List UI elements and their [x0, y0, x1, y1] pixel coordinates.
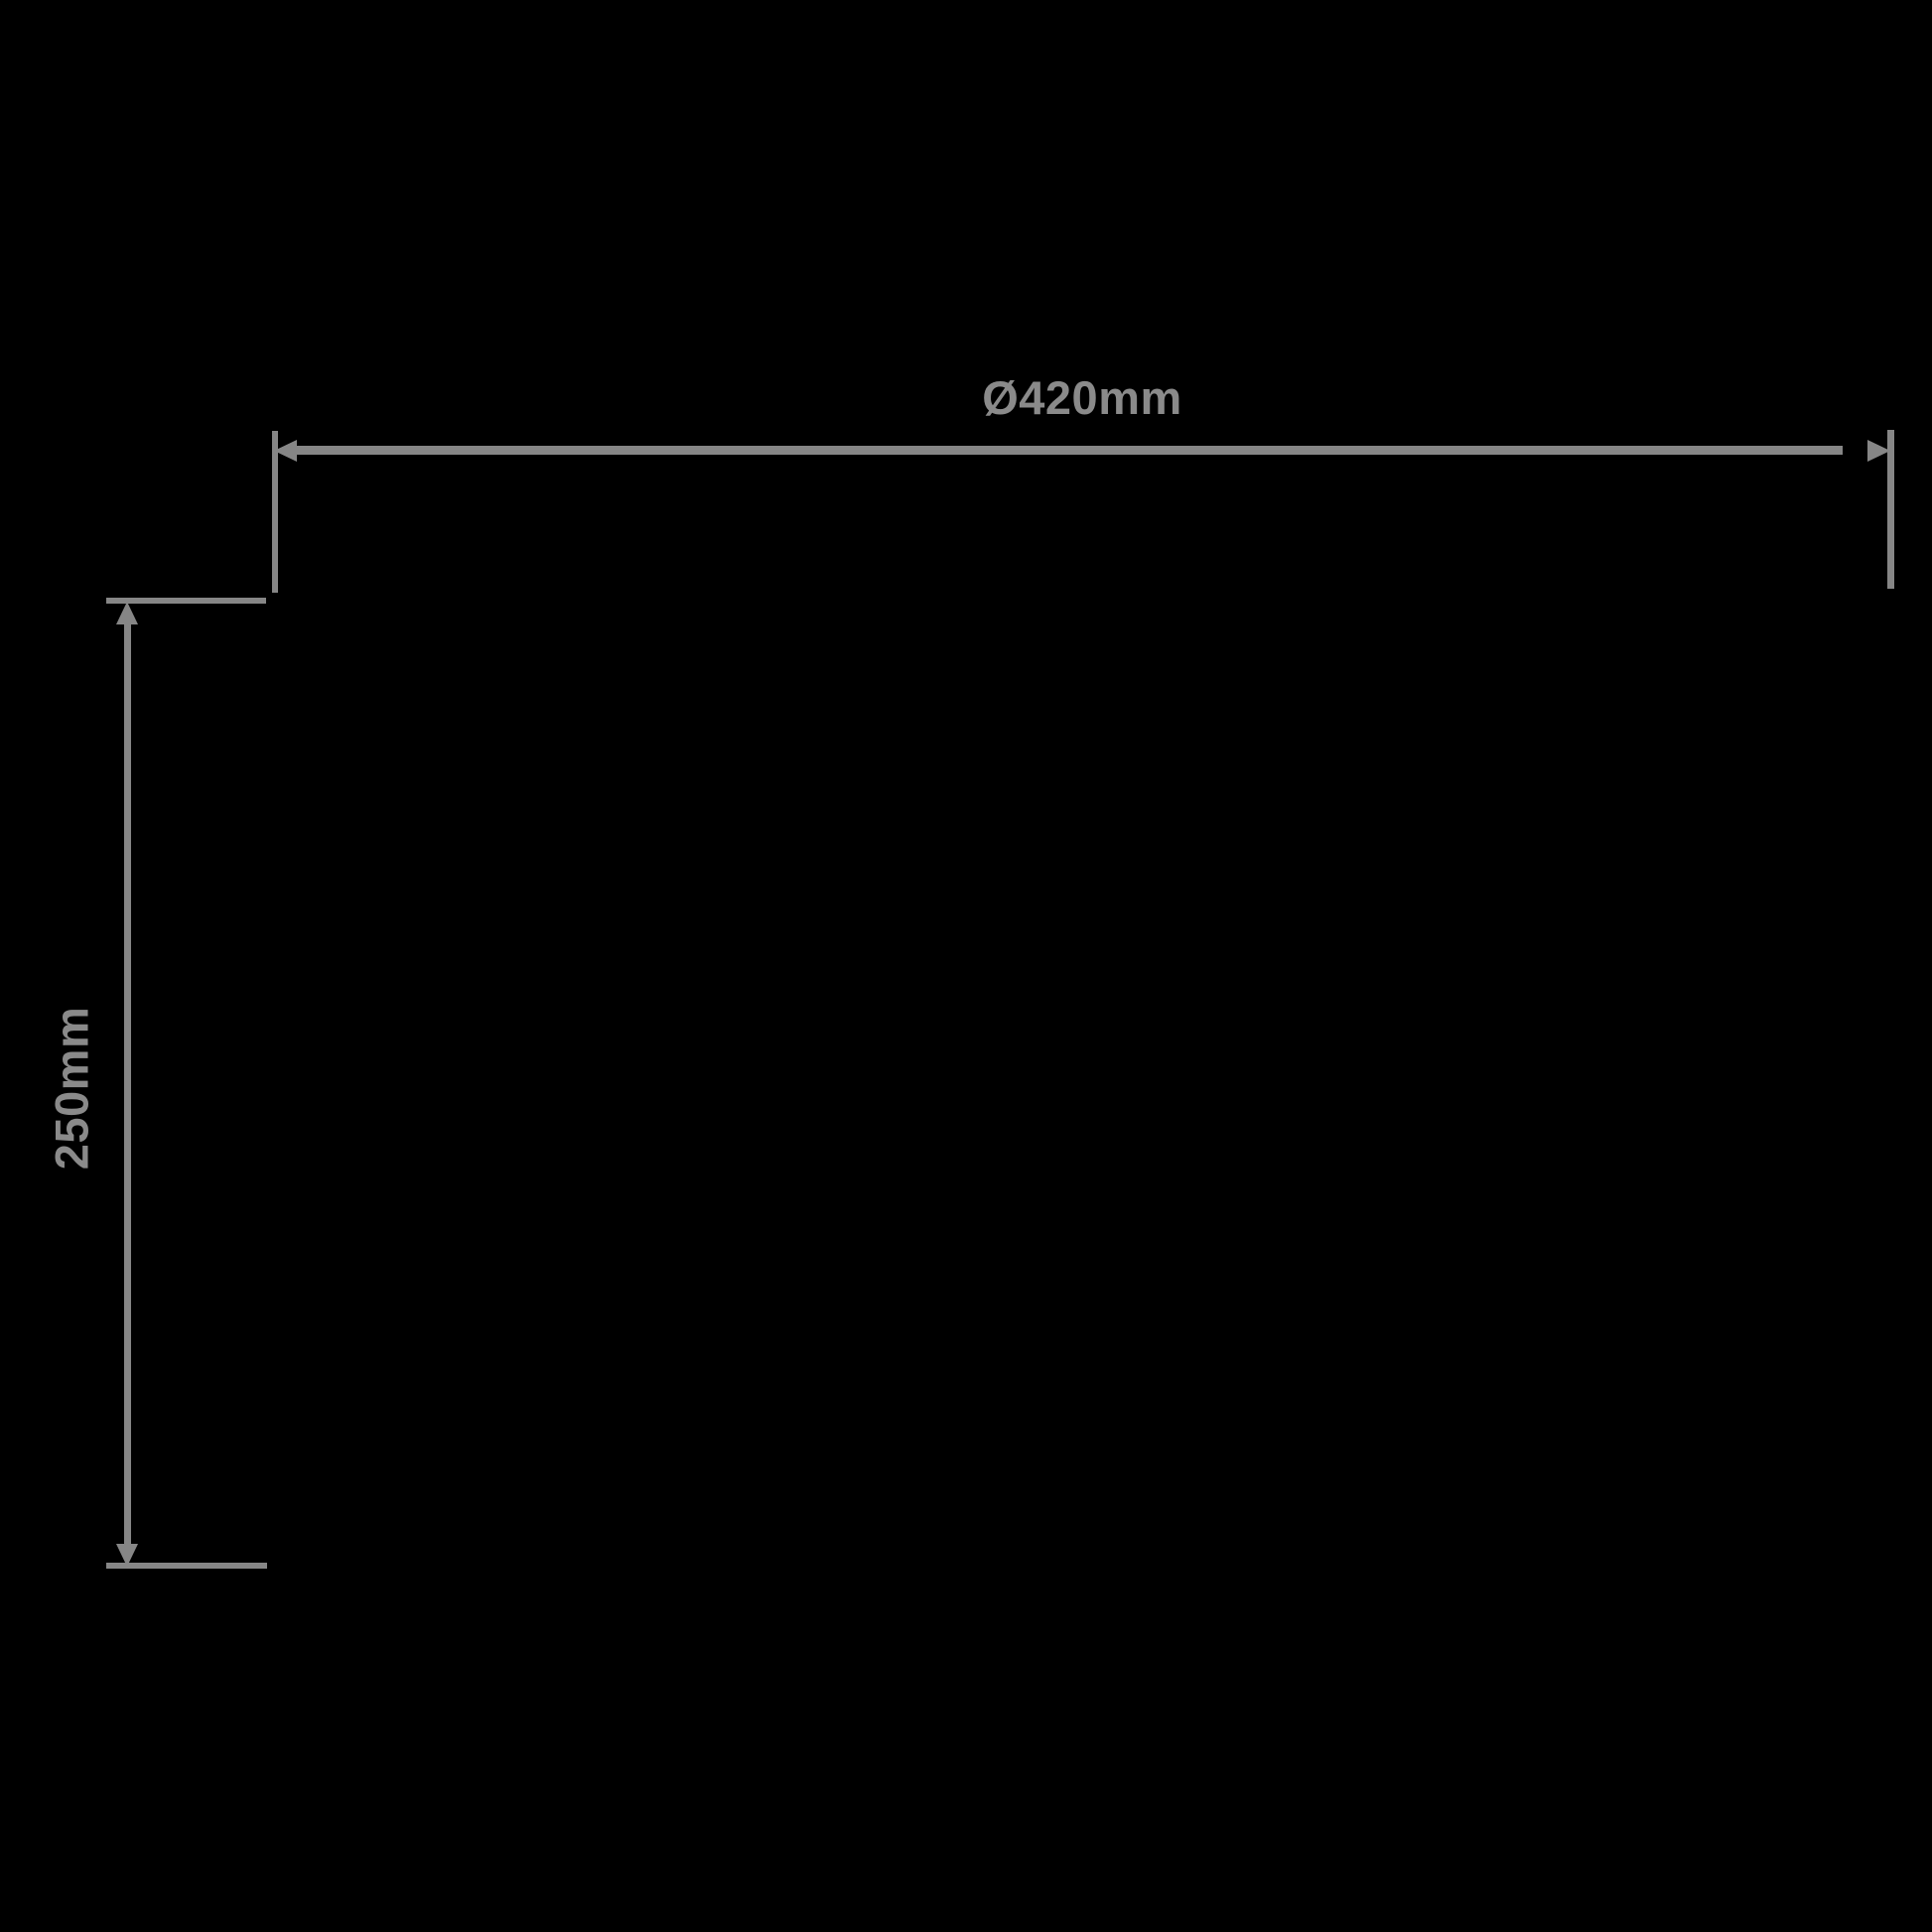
height-dimension-label: 250mm: [49, 1007, 95, 1171]
height-dimension-line: [124, 614, 131, 1555]
arrowhead-down-icon: [116, 1544, 138, 1567]
diameter-dimension-line: [288, 446, 1843, 455]
diameter-dimension-label: Ø420mm: [982, 374, 1182, 421]
arrowhead-left-icon: [274, 440, 297, 462]
arrowhead-right-icon: [1867, 440, 1890, 462]
arrowhead-up-icon: [116, 602, 138, 624]
dimension-diagram: Ø420mm 250mm: [0, 0, 1932, 1932]
